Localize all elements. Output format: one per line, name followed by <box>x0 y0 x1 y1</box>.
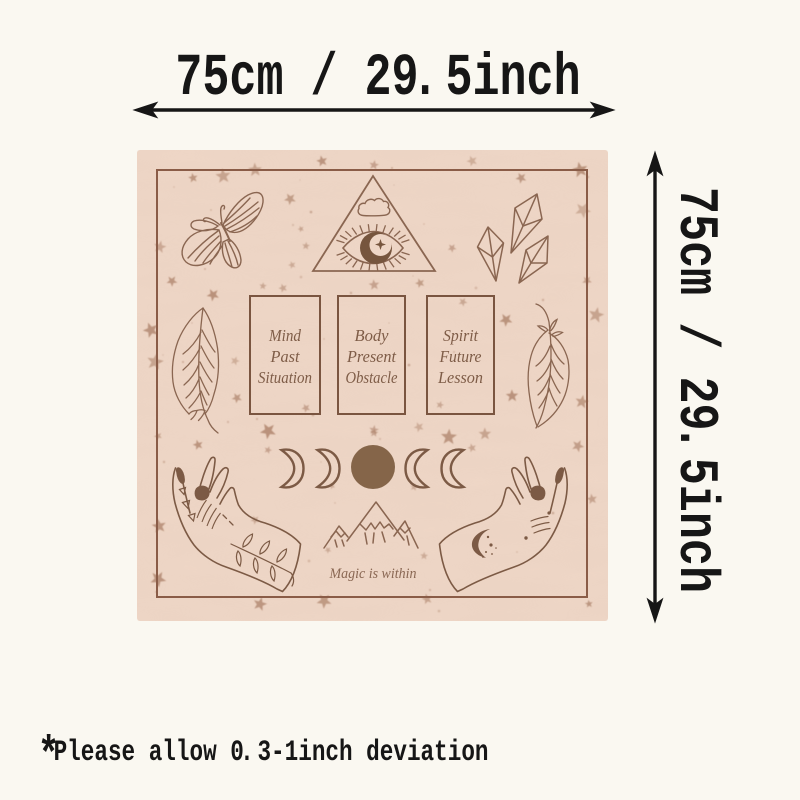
svg-text:Past: Past <box>270 347 300 366</box>
svg-text:Body: Body <box>355 326 390 345</box>
svg-text:Situation: Situation <box>258 368 312 387</box>
svg-text:Mind: Mind <box>268 326 302 345</box>
svg-text:75cm / 29.5inch: 75cm / 29.5inch <box>175 45 580 112</box>
svg-text:Obstacle: Obstacle <box>346 368 398 387</box>
svg-text:Present: Present <box>346 347 396 366</box>
svg-text:Lesson: Lesson <box>437 368 483 387</box>
svg-text:75cm / 29.5inch: 75cm / 29.5inch <box>663 187 726 593</box>
svg-text:Future: Future <box>439 347 482 366</box>
svg-text:Magic is within: Magic is within <box>329 566 417 582</box>
svg-text:Please allow 0.3-1inch deviati: Please allow 0.3-1inch deviation <box>54 735 489 769</box>
svg-text:Spirit: Spirit <box>443 326 478 345</box>
